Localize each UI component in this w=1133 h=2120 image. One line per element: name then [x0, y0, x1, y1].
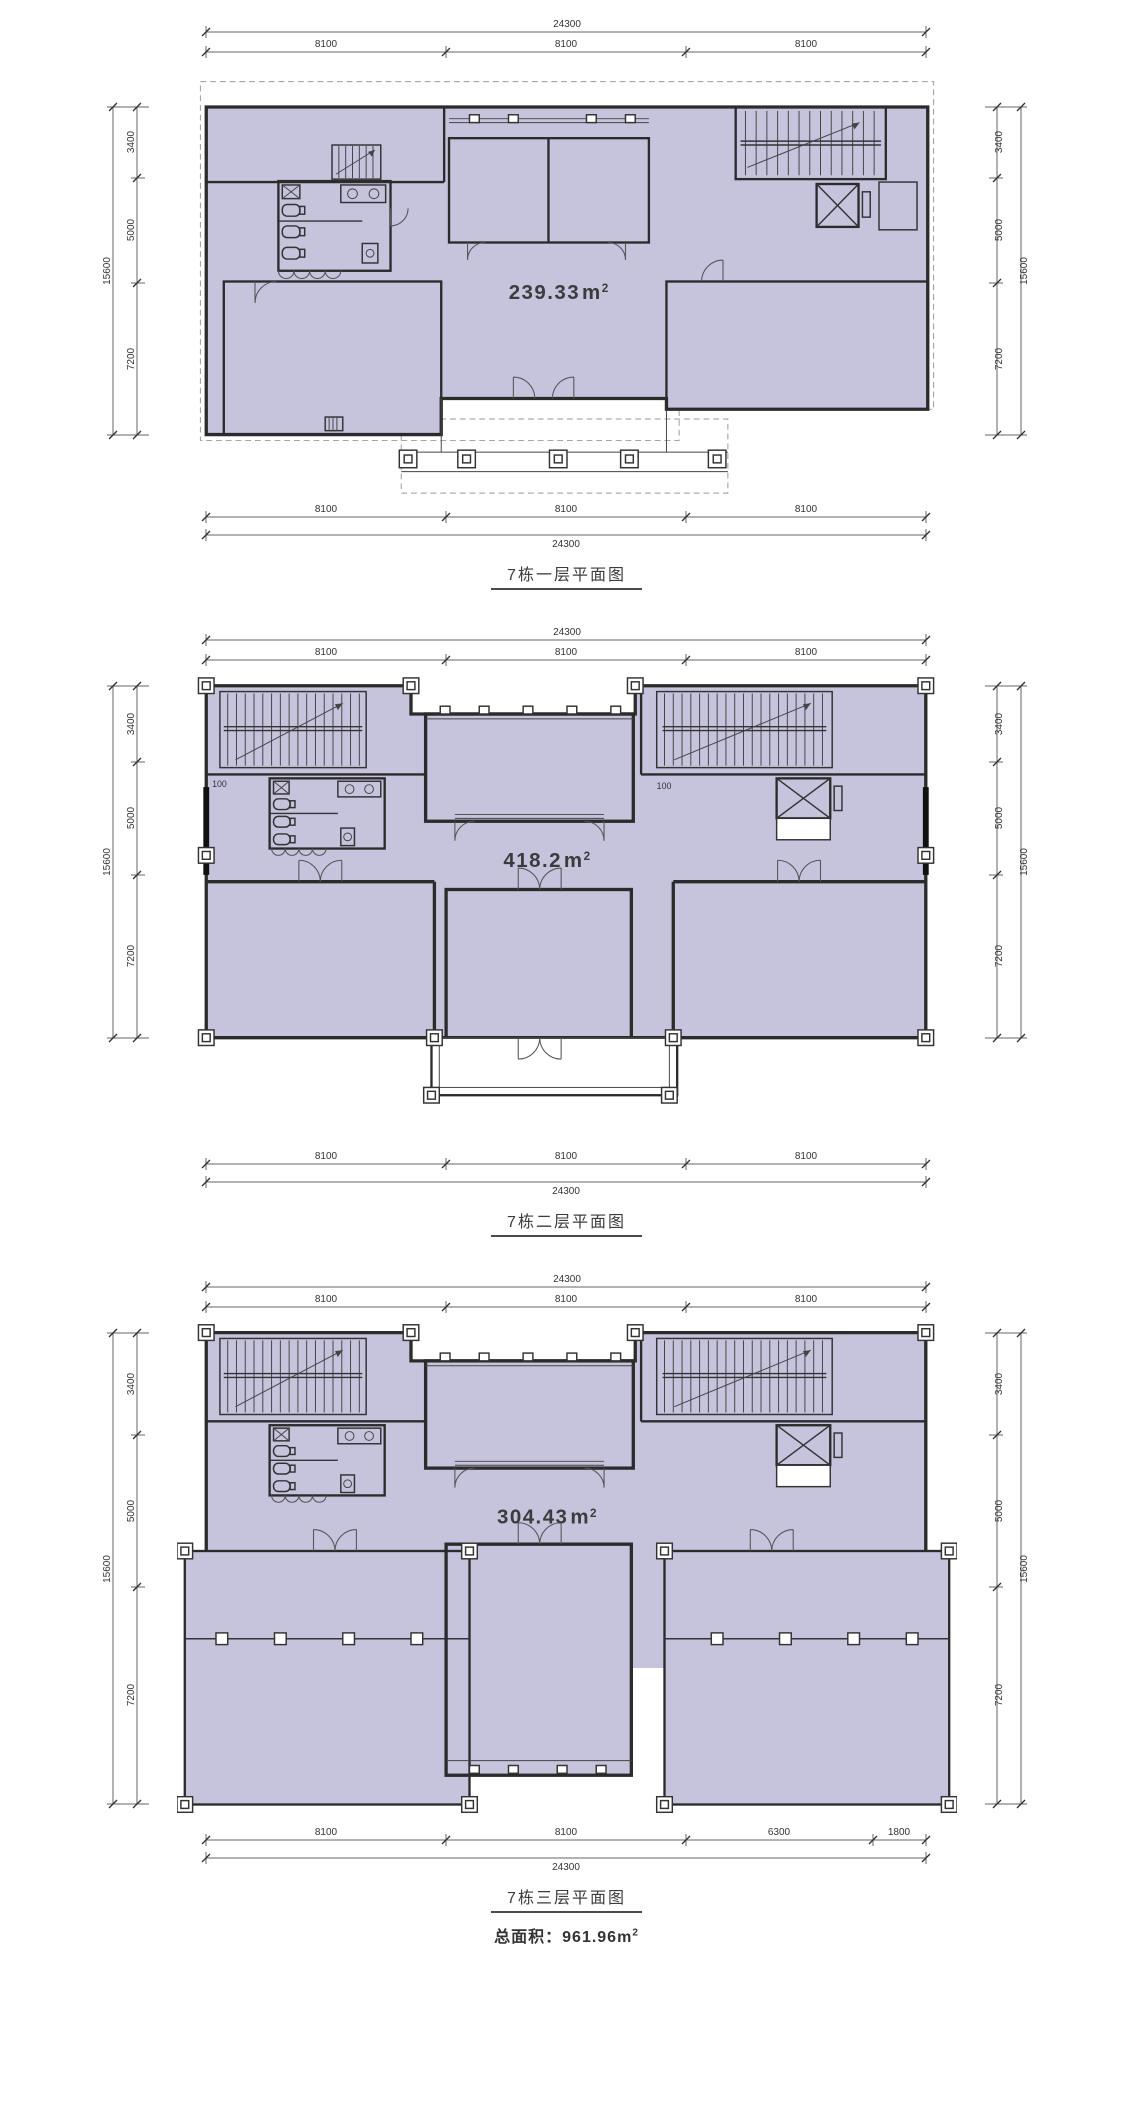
dim-segment-label: 8100 [554, 647, 577, 658]
dim-total-label: 24300 [553, 1274, 581, 1285]
column-icon [918, 1325, 934, 1341]
column-icon [918, 678, 934, 694]
floor2-right-dimension: 15600 3400 5000 7200 [971, 670, 1035, 1148]
dim-total-label: 15600 [102, 1555, 113, 1583]
column-icon [198, 678, 214, 694]
column-icon [198, 848, 214, 864]
dim-segment-label: 8100 [794, 504, 817, 515]
column-icon [627, 678, 643, 694]
column-icon [656, 1543, 672, 1559]
floor2-top-dimension: 24300 8100 8100 8100 [177, 624, 957, 670]
dim-segment-label: 7200 [126, 944, 137, 967]
dim-segment-label: 5000 [126, 218, 137, 241]
floor3-right-dimension: 15600 3400 5000 7200 [971, 1317, 1035, 1824]
dim-segment-label: 3400 [994, 712, 1005, 735]
area-label: 304.43m2 [497, 1506, 598, 1529]
column-icon [198, 1030, 214, 1046]
dim-segment-label: 8100 [794, 1294, 817, 1305]
dim-total-label: 15600 [102, 257, 113, 285]
terrace-left [184, 1551, 469, 1805]
column-icon [403, 1325, 419, 1341]
column-icon [711, 1633, 723, 1645]
column-icon [177, 1543, 193, 1559]
dim-total-label: 24300 [553, 627, 581, 638]
column-icon [906, 1633, 918, 1645]
dim-total-label: 15600 [1019, 848, 1030, 876]
column-icon [461, 1543, 477, 1559]
column-icon [779, 1633, 791, 1645]
column-icon [708, 450, 726, 468]
area-label: 239.33m2 [508, 281, 609, 304]
column-icon [656, 1797, 672, 1813]
column-icon [426, 1030, 442, 1046]
floor1-bottom-dimension: 8100 8100 8100 24300 [177, 501, 957, 549]
dim-segment-label: 8100 [554, 1827, 577, 1838]
dim-segment-label: 8100 [314, 1827, 337, 1838]
floor1-plan-row: 15600 3400 5000 7200 [0, 62, 1133, 501]
column-icon [461, 1797, 477, 1813]
dim-segment-label: 8100 [554, 1151, 577, 1162]
floor3-plan-drawing: 304.43m2 [177, 1317, 957, 1824]
dim-segment-label: 8100 [794, 647, 817, 658]
plan-title: 7栋三层平面图 [491, 1884, 642, 1913]
column-icon [941, 1543, 957, 1559]
column-icon [423, 1087, 439, 1103]
column-icon [274, 1633, 286, 1645]
column-icon [198, 1325, 214, 1341]
dim-segment-label: 8100 [554, 39, 577, 50]
column-icon [403, 678, 419, 694]
dim-segment-label: 8100 [314, 1151, 337, 1162]
room-bottom-center [446, 1544, 631, 1775]
total-area-label: 总面积：961.96m2 [494, 1929, 639, 1946]
dim-segment-label: 3400 [994, 130, 1005, 153]
floor3-left-dimension: 15600 3400 5000 7200 [99, 1317, 163, 1824]
dim-segment-label: 8100 [314, 647, 337, 658]
dim-segment-label: 8100 [314, 39, 337, 50]
dim-total-label: 24300 [553, 19, 581, 30]
dim-total-label: 15600 [102, 848, 113, 876]
dim-segment-label: 7200 [994, 347, 1005, 370]
floor2-left-dimension: 15600 3400 5000 7200 [99, 670, 163, 1148]
balcony [431, 1038, 677, 1096]
column-icon [177, 1797, 193, 1813]
column-icon [342, 1633, 354, 1645]
dim-total-label: 24300 [552, 539, 580, 549]
dim-segment-label: 5000 [994, 218, 1005, 241]
floor1-top-dimension-row: 24300 8100 8100 8100 [0, 16, 1133, 62]
column-icon [399, 450, 417, 468]
dim-segment-label: 6300 [767, 1827, 790, 1838]
dim-total-label: 24300 [552, 1862, 580, 1872]
dim-segment-label: 5000 [126, 806, 137, 829]
floor1-plan-drawing: 239.33m2 [177, 62, 957, 501]
floor3-bottom-dimension-row: 8100 8100 6300 1800 24300 [0, 1824, 1133, 1872]
dim-total-label: 15600 [1019, 257, 1030, 285]
dim-segment-label: 7200 [126, 347, 137, 370]
dim-segment-label: 8100 [794, 39, 817, 50]
dim-segment-label: 3400 [126, 130, 137, 153]
column-icon [216, 1633, 228, 1645]
drawing-sheet: 24300 8100 8100 8100 15600 3400 5000 720… [0, 0, 1133, 1947]
floor3-plan-row: 15600 3400 5000 7200 [0, 1317, 1133, 1824]
plan-title: 7栋二层平面图 [491, 1208, 642, 1237]
dim-segment-label: 5000 [994, 806, 1005, 829]
column-icon [620, 450, 638, 468]
dim-segment-label: 8100 [554, 1294, 577, 1305]
dim-segment-label: 8100 [314, 504, 337, 515]
floor2-plan-drawing: 100 100 418.2m2 [177, 670, 957, 1148]
column-icon [457, 450, 475, 468]
dim-segment-label: 8100 [554, 504, 577, 515]
dim-segment-label: 7200 [994, 944, 1005, 967]
dim-segment-label: 3400 [126, 712, 137, 735]
column-icon [627, 1325, 643, 1341]
dim-total-label: 24300 [552, 1186, 580, 1196]
dim-segment-label: 5000 [126, 1499, 137, 1522]
floor2-top-dimension-row: 24300 8100 8100 8100 [0, 624, 1133, 670]
column-icon [941, 1797, 957, 1813]
floor3-section: 24300 8100 8100 8100 15600 3400 5000 720… [0, 1271, 1133, 1947]
dim-segment-label: 3400 [126, 1372, 137, 1395]
column-icon [665, 1030, 681, 1046]
terrace-right [664, 1551, 949, 1805]
dim-total-label: 15600 [1019, 1555, 1030, 1583]
floor1-bottom-dimension-row: 8100 8100 8100 24300 [0, 501, 1133, 549]
floor2-bottom-dimension-row: 8100 8100 8100 24300 [0, 1148, 1133, 1196]
dim-segment-label: 8100 [794, 1151, 817, 1162]
floor2-section: 24300 8100 8100 8100 15600 3400 5000 720… [0, 624, 1133, 1237]
dim-segment-label: 5000 [994, 1499, 1005, 1522]
column-icon [918, 848, 934, 864]
offset-annotation: 100 [212, 779, 227, 789]
area-label: 418.2m2 [503, 849, 591, 872]
floor1-right-dimension: 15600 3400 5000 7200 [971, 62, 1035, 501]
floor3-bottom-dimension: 8100 8100 6300 1800 24300 [177, 1824, 957, 1872]
column-icon [661, 1087, 677, 1103]
floor1-top-dimension: 24300 8100 8100 8100 [177, 16, 957, 62]
column-icon [411, 1633, 423, 1645]
floor1-section: 24300 8100 8100 8100 15600 3400 5000 720… [0, 16, 1133, 590]
dim-segment-label: 7200 [994, 1683, 1005, 1706]
floor3-top-dimension-row: 24300 8100 8100 8100 [0, 1271, 1133, 1317]
dim-segment-label: 8100 [314, 1294, 337, 1305]
total-area-row: 总面积：961.96m2 [0, 1923, 1133, 1947]
offset-annotation: 100 [656, 781, 671, 791]
floor1-left-dimension: 15600 3400 5000 7200 [99, 62, 163, 501]
floor2-plan-row: 15600 3400 5000 7200 [0, 670, 1133, 1148]
dim-segment-label: 1800 [887, 1827, 910, 1838]
column-icon [549, 450, 567, 468]
column-icon [847, 1633, 859, 1645]
column-icon [918, 1030, 934, 1046]
floor2-bottom-dimension: 8100 8100 8100 24300 [177, 1148, 957, 1196]
floor3-top-dimension: 24300 8100 8100 8100 [177, 1271, 957, 1317]
dim-segment-label: 7200 [126, 1683, 137, 1706]
plan-title: 7栋一层平面图 [491, 561, 642, 590]
dim-segment-label: 3400 [994, 1372, 1005, 1395]
